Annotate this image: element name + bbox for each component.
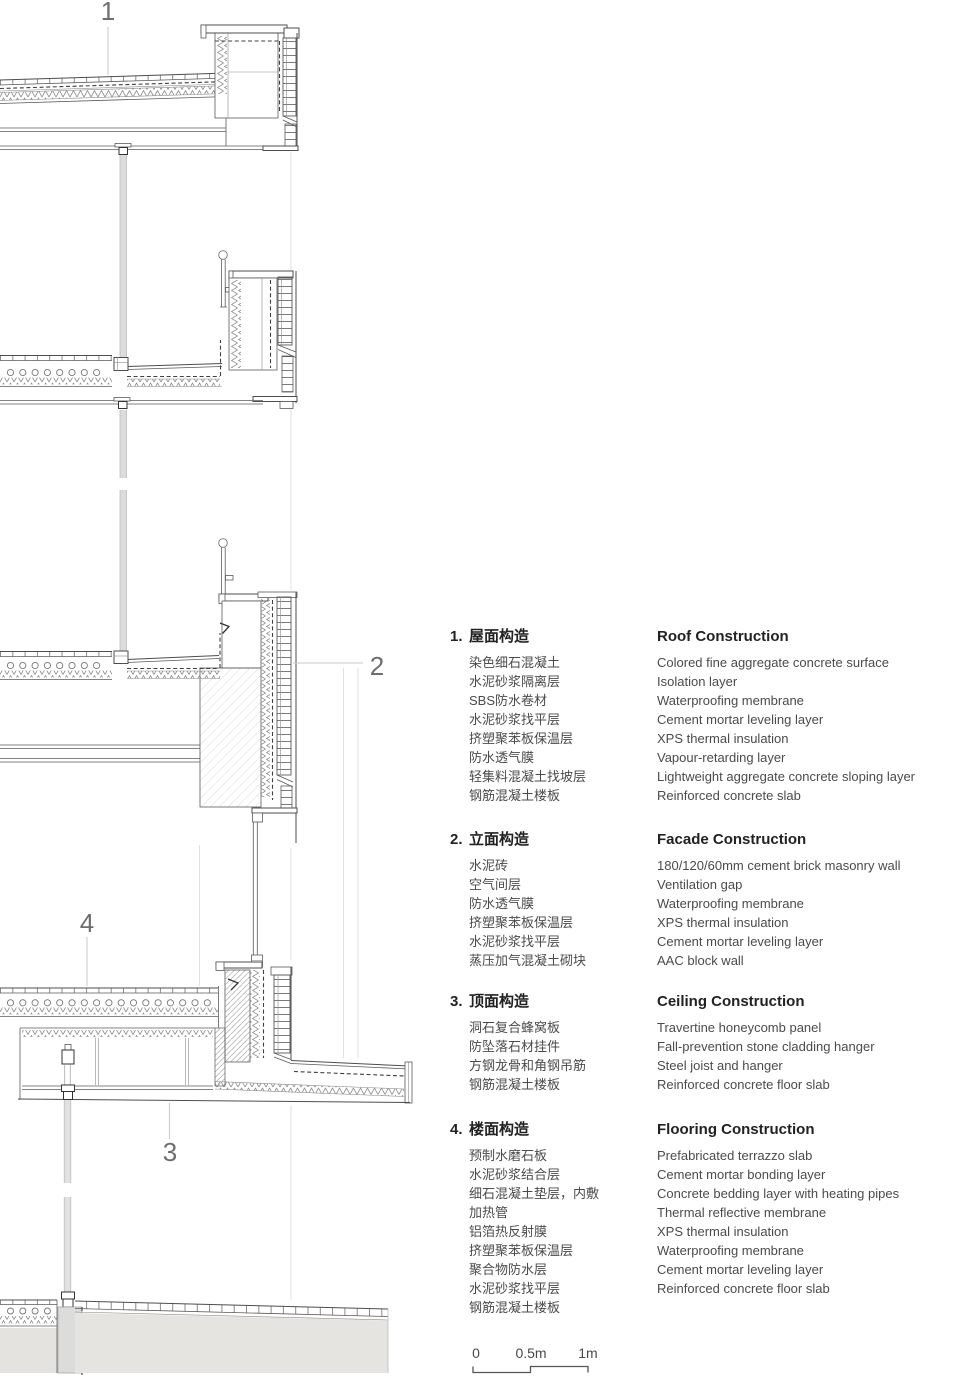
architectural-section-sheet: 1 2 3 4 0 0.5m 1m 1.屋面构造 Roof Constructi…: [0, 0, 960, 1378]
legend-row: 细石混凝土垫层，内敷Concrete bedding layer with he…: [450, 1184, 955, 1203]
facade-wall-detail: [0, 539, 297, 843]
legend-row: 挤塑聚苯板保温层Waterproofing membrane: [450, 1241, 955, 1260]
section-title-en: Flooring Construction: [657, 1120, 814, 1140]
canopy-top: [291, 1061, 409, 1067]
exterior-ground: [75, 1313, 388, 1373]
brick-cap: [271, 967, 292, 975]
wall-foot-plate: [263, 146, 298, 151]
legend-row: 空气间层Ventilation gap: [450, 875, 955, 894]
floor-canopy-detail: [0, 822, 412, 1375]
legend-section-ceiling: 3.顶面构造 Ceiling Construction 洞石复合蜂窝板Trave…: [450, 992, 955, 1094]
window-sill: [114, 651, 128, 664]
section-title-zh: 立面构造: [469, 831, 529, 848]
legend-row: 钢筋混凝土楼板Reinforced concrete floor slab: [450, 1075, 955, 1094]
window-mullion: [120, 410, 127, 478]
callout-1: 1: [101, 0, 115, 26]
drain-fitting: [62, 1050, 74, 1064]
window-mullion: [120, 155, 127, 358]
legend-row: 挤塑聚苯板保温层XPS thermal insulation: [450, 729, 955, 748]
legend-row: 水泥砂浆找平层Cement mortar leveling layer: [450, 932, 955, 951]
scale-bar-rule: [473, 1367, 588, 1373]
legend-row: 染色细石混凝土Colored fine aggregate concrete s…: [450, 653, 955, 672]
legend-row: 轻集料混凝土找坡层Lightweight aggregate concrete …: [450, 767, 955, 786]
handrail-section: [219, 251, 228, 260]
window-sill: [114, 358, 128, 371]
section-title-zh: 顶面构造: [469, 993, 529, 1010]
parapet-insulation: [231, 280, 241, 368]
upstand-wall: [222, 601, 261, 668]
legend-row: 加热管Thermal reflective membrane: [450, 1203, 955, 1222]
legend-header: 2.立面构造 Facade Construction: [450, 830, 955, 850]
scale-label-0: 0: [472, 1345, 480, 1361]
legend-row: 水泥砂浆结合层Cement mortar bonding layer: [450, 1165, 955, 1184]
parapet-insulation: [217, 36, 227, 94]
callout-2: 2: [370, 651, 384, 681]
legend-row: 防水透气膜Waterproofing membrane: [450, 894, 955, 913]
legend-header: 4.楼面构造 Flooring Construction: [450, 1120, 955, 1140]
ceiling-hangers: [7, 1000, 210, 1006]
section-number: 1.: [450, 627, 469, 647]
brick-cladding: [277, 597, 291, 775]
section-title-zh: 楼面构造: [469, 1121, 529, 1138]
scale-bar: 0 0.5m 1m: [472, 1345, 598, 1373]
section-title-en: Roof Construction: [657, 627, 789, 647]
legend-row: 预制水磨石板Prefabricated terrazzo slab: [450, 1146, 955, 1165]
legend-row: 水泥砂浆找平层Cement mortar leveling layer: [450, 710, 955, 729]
ceiling-hangers: [7, 369, 99, 375]
section-number: 4.: [450, 1120, 469, 1140]
ceiling-bottom-line: [18, 1099, 410, 1103]
legend-section-flooring: 4.楼面构造 Flooring Construction 预制水磨石板Prefa…: [450, 1120, 955, 1317]
legend-row: 水泥砂浆找平层Reinforced concrete floor slab: [450, 1279, 955, 1298]
aac-block-wall: [200, 668, 261, 807]
terrace-parapet-detail: [0, 251, 297, 652]
brick-cladding: [278, 277, 292, 345]
xps-insulation: [250, 970, 260, 1058]
legend-row: 铝箔热反射膜XPS thermal insulation: [450, 1222, 955, 1241]
ceiling-hangers: [7, 662, 99, 668]
legend-section-roof: 1.屋面构造 Roof Construction 染色细石混凝土Colored …: [450, 627, 955, 805]
section-title-en: Ceiling Construction: [657, 992, 805, 1012]
xps-insulation: [261, 599, 270, 797]
brick-cladding: [283, 38, 296, 116]
legend-header: 3.顶面构造 Ceiling Construction: [450, 992, 955, 1012]
floor-finish-band: [0, 652, 112, 657]
callout-3: 3: [163, 1137, 177, 1167]
handrail-section: [219, 539, 228, 548]
section-number: 2.: [450, 830, 469, 850]
pipe-coupling: [62, 1292, 75, 1299]
column-capital: [115, 144, 131, 148]
floor-finish-band: [0, 356, 112, 361]
drain-pipe: [64, 1100, 71, 1183]
legend-row: 钢筋混凝土楼板Reinforced concrete slab: [450, 786, 955, 805]
legend-row: 聚合物防水层Cement mortar leveling layer: [450, 1260, 955, 1279]
callout-4: 4: [80, 908, 94, 938]
wall-foot-plate: [252, 808, 297, 813]
legend-row: 钢筋混凝土楼板: [450, 1298, 955, 1317]
section-number: 3.: [450, 992, 469, 1012]
railing-bracket: [226, 576, 234, 581]
legend-row: SBS防水卷材Waterproofing membrane: [450, 691, 955, 710]
canopy-insulation: [215, 1082, 404, 1097]
ceiling-hangers: [8, 1308, 51, 1314]
legend-row: 洞石复合蜂窝板Travertine honeycomb panel: [450, 1018, 955, 1037]
section-title-zh: 屋面构造: [469, 628, 529, 645]
legend-header: 1.屋面构造 Roof Construction: [450, 627, 955, 647]
ceiling-insulation: [0, 378, 112, 385]
legend-row: 防坠落石材挂件Fall-prevention stone cladding ha…: [450, 1037, 955, 1056]
legend-row: 挤塑聚苯板保温层XPS thermal insulation: [450, 913, 955, 932]
scale-label-05m: 0.5m: [515, 1345, 546, 1361]
terrazzo-floor-band: [0, 988, 218, 993]
void-side-column: [215, 1028, 225, 1086]
legend-row: 水泥砖180/120/60mm cement brick masonry wal…: [450, 856, 955, 875]
interior-ground: [0, 1328, 57, 1373]
brick-cladding: [274, 975, 290, 1053]
legend-row: 蒸压加气混凝土砌块AAC block wall: [450, 951, 955, 970]
terrace-insulation: [127, 379, 220, 387]
section-title-en: Facade Construction: [657, 830, 806, 850]
legend-row: 水泥砂浆隔离层Isolation layer: [450, 672, 955, 691]
legend-row: 防水透气膜Vapour-retarding layer: [450, 748, 955, 767]
scale-label-1m: 1m: [578, 1345, 597, 1361]
legend-row: 方钢龙骨和角钢吊筋Steel joist and hanger: [450, 1056, 955, 1075]
parapet-coping: [201, 25, 287, 33]
legend-section-facade: 2.立面构造 Facade Construction 水泥砖180/120/60…: [450, 830, 955, 970]
